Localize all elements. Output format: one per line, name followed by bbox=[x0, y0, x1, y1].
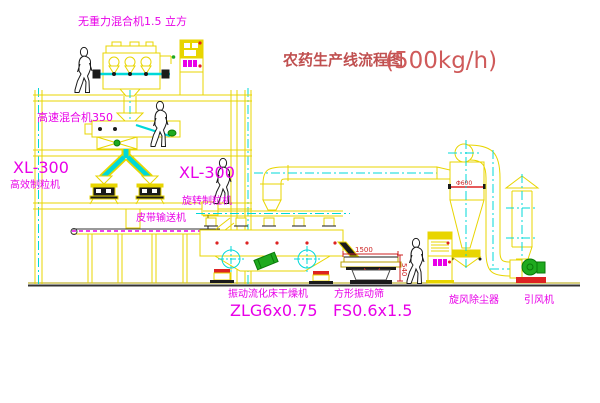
screen-model-label: FS0.6x1.5 bbox=[333, 301, 412, 320]
screen-name-label: 方形振动筛 bbox=[334, 287, 384, 300]
granulator-right bbox=[136, 176, 164, 204]
belt-conveyor-label: 皮带输送机 bbox=[136, 211, 186, 224]
cyclone-diameter-dimension: Φ600 bbox=[456, 180, 472, 187]
fan-label: 引风机 bbox=[524, 293, 554, 306]
exhaust-duct bbox=[254, 165, 452, 210]
granulator-center-model-label: XL-300 bbox=[179, 163, 235, 182]
granulator-left-model-label: XL-300 bbox=[13, 158, 69, 177]
dryer-name-label: 振动流化床干燥机 bbox=[228, 287, 308, 300]
granulator-left-name-label: 高效制粒机 bbox=[10, 178, 60, 191]
person-figure-ground bbox=[407, 238, 424, 283]
production-line-flow-diagram: 无重力混合机1.5 立方 农药生产线流程图 (500kg/h) 高速混合机350… bbox=[0, 0, 600, 403]
dryer-model-label: ZLG6x0.75 bbox=[230, 301, 318, 320]
gravity-free-mixer bbox=[93, 42, 175, 96]
cyclone-separator bbox=[448, 140, 486, 270]
granulator-center-name-label: 旋转制粒机 bbox=[182, 194, 232, 207]
y-splitter-pipes bbox=[102, 149, 150, 178]
cyclone-label: 旋风除尘器 bbox=[449, 293, 499, 306]
induced-draft-fan bbox=[510, 259, 546, 283]
diagram-title-capacity: (500kg/h) bbox=[385, 48, 497, 74]
gravity-mixer-label: 无重力混合机1.5 立方 bbox=[78, 14, 187, 28]
fluid-bed-dryer bbox=[196, 202, 358, 284]
diagram-canvas: 无重力混合机1.5 立方 农药生产线流程图 (500kg/h) 高速混合机350… bbox=[0, 0, 600, 403]
person-figure-top-floor bbox=[75, 47, 92, 92]
ground-line bbox=[28, 283, 580, 286]
screen-length-dimension: 1500 bbox=[355, 246, 373, 254]
granulator-left bbox=[90, 176, 118, 204]
control-cabinet-right bbox=[426, 232, 454, 283]
screen-height-dimension: 540 bbox=[400, 263, 408, 276]
control-cabinet-top bbox=[180, 40, 203, 95]
high-speed-mixer-label: 高速混合机350 bbox=[37, 110, 113, 124]
